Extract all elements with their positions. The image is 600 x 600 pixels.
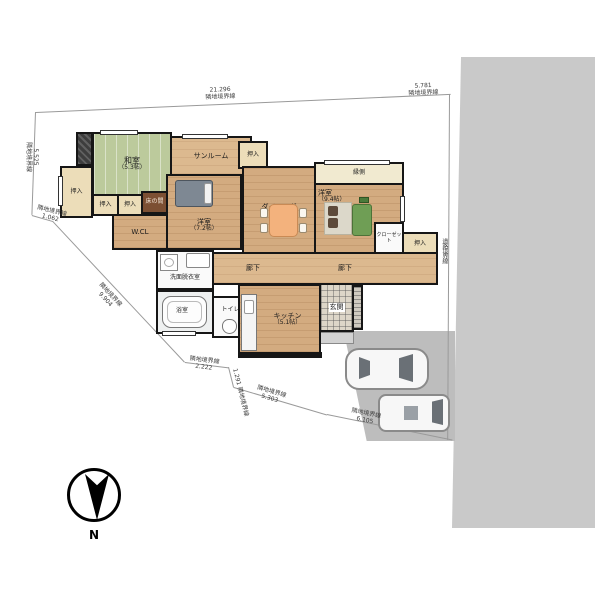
window	[100, 130, 138, 135]
boundary-label-top-right: 5.781 隣地境界線	[408, 83, 439, 98]
window	[324, 160, 390, 165]
room-label: 床の間	[145, 199, 163, 206]
boundary-label-south1: 隣地境界線 2.222	[188, 356, 219, 373]
bed-pillow	[204, 183, 212, 204]
tv	[359, 197, 369, 203]
room-label: 押入	[414, 241, 426, 248]
alcove-cell	[76, 132, 93, 166]
boundary-name: 隣地境界線	[408, 90, 438, 98]
exterior-wall-south	[238, 352, 322, 358]
floorplan-canvas: 21.296 隣地境界線 5.781 隣地境界線 5.525 隣地境界線 隣地境…	[0, 0, 600, 600]
room-oshiire-top: 押入	[238, 141, 268, 169]
dining-chair	[299, 223, 307, 233]
boundary-label-top: 21.296 隣地境界線	[205, 87, 236, 102]
room-label: トイレ	[221, 307, 239, 314]
room-size: （9.4帖）	[318, 197, 346, 204]
room-label: 押入	[124, 202, 136, 209]
boundary-name: 道路境界線	[441, 238, 448, 263]
room-label: 縁側	[353, 170, 365, 177]
room-label: 押入	[70, 189, 82, 196]
window	[58, 176, 63, 206]
room-label-corridor-west: 廊下	[246, 264, 260, 272]
north-arrow-icon	[82, 473, 112, 520]
boundary-name: 隣地境界線	[24, 142, 31, 172]
room-label: 押入	[99, 202, 111, 209]
dining-table	[269, 204, 298, 237]
cushion	[328, 218, 338, 228]
car-rear-window	[359, 357, 370, 379]
room-tokonoma: 床の間	[141, 191, 168, 214]
room-label: 浴室	[176, 307, 188, 314]
window	[400, 196, 405, 222]
room-label-bath: 浴室	[176, 308, 188, 315]
boundary-value: 5.525	[31, 142, 38, 172]
washing-machine	[160, 254, 178, 271]
van-windshield	[432, 399, 443, 425]
vanity-sink	[186, 253, 210, 268]
room-label-corridor-east: 廊下	[338, 264, 352, 272]
toilet-fixture	[222, 319, 237, 334]
room-engawa: 縁側	[314, 162, 404, 185]
compass-north-label: N	[67, 528, 121, 542]
boundary-line-top	[36, 94, 451, 113]
kitchen-sink	[244, 300, 254, 314]
cushion	[328, 206, 338, 216]
room-label: W.CL	[131, 228, 148, 236]
room-label: 玄関	[329, 303, 345, 311]
boundary-value: 1.291	[231, 368, 242, 386]
window	[162, 331, 196, 336]
dining-chair	[299, 208, 307, 218]
boundary-name: 隣地境界線	[205, 94, 235, 102]
room-size: （7.2帖）	[190, 226, 218, 233]
room-size: （5.1帖）	[274, 320, 302, 327]
room-wcl: W.CL	[112, 214, 168, 250]
van-roof-panel	[404, 406, 418, 420]
road-area	[452, 57, 595, 528]
compass	[67, 468, 121, 522]
room-label: サンルーム	[194, 152, 229, 160]
room-label: 洗面脱衣室	[170, 275, 200, 282]
car-sedan	[345, 348, 429, 390]
room-oshiire-a: 押入	[92, 194, 119, 216]
car-windshield	[399, 354, 413, 382]
boundary-label-south3: 隣地境界線 5.303	[254, 385, 287, 407]
room-closet: クローゼット	[374, 222, 404, 255]
room-label: クローゼット	[376, 233, 402, 245]
boundary-label-south2: 1.291 隣地境界線	[230, 368, 249, 417]
dining-chair	[260, 223, 268, 233]
sofa	[352, 204, 372, 236]
room-genkan: 玄関	[319, 283, 354, 332]
room-washitsu: 和室 （5.3帖）	[92, 132, 172, 196]
genkan-storage	[352, 285, 363, 330]
room-size: （5.3帖）	[118, 165, 146, 172]
room-label: 廊下	[246, 264, 260, 272]
room-label: 押入	[247, 152, 259, 159]
room-oshiire-b: 押入	[117, 194, 143, 216]
room-label: 廊下	[338, 264, 352, 272]
boundary-label-southwest: 隣地境界線 9.904	[92, 282, 123, 313]
entrance-porch	[319, 332, 354, 344]
boundary-label-road: 道路境界線	[440, 238, 447, 263]
window	[182, 134, 228, 139]
dining-chair	[260, 208, 268, 218]
car-van	[378, 394, 450, 432]
boundary-label-left: 5.525 隣地境界線	[24, 142, 38, 172]
room-label-youshitsu94: 洋室 （9.4帖）	[318, 189, 346, 204]
